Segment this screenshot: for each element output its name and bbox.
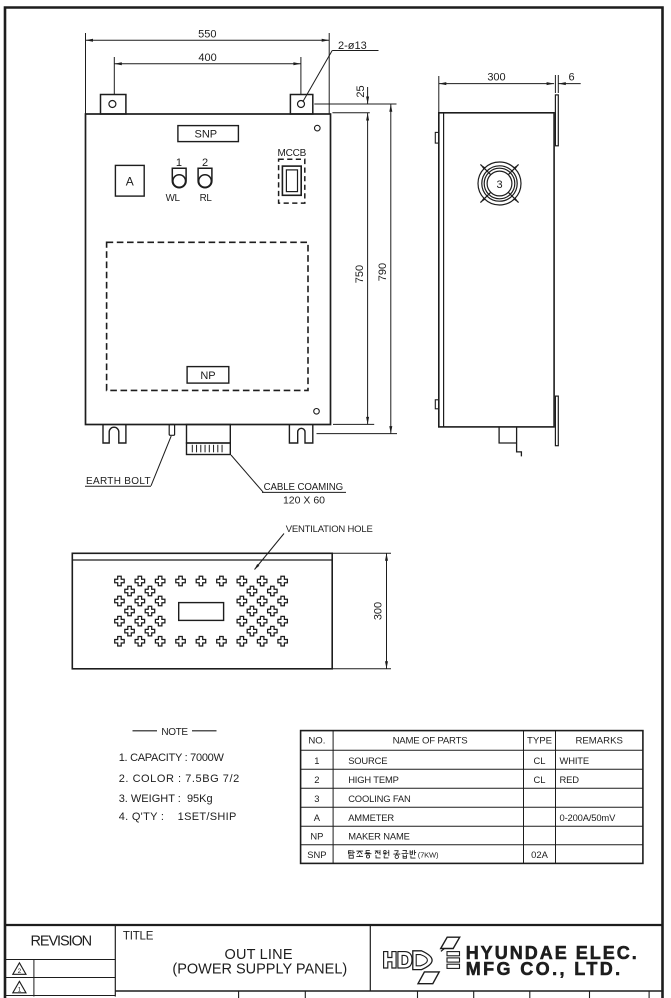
svg-text:2: 2 bbox=[314, 774, 319, 785]
svg-text:1: 1 bbox=[18, 987, 22, 994]
svg-text:AMMETER: AMMETER bbox=[348, 812, 394, 823]
svg-text:TITLE: TITLE bbox=[123, 931, 154, 943]
svg-text:SNP: SNP bbox=[194, 129, 217, 141]
svg-text:SOURCE: SOURCE bbox=[348, 755, 387, 766]
svg-text:400: 400 bbox=[198, 52, 216, 64]
svg-text:A: A bbox=[126, 175, 134, 189]
svg-text:CL: CL bbox=[534, 755, 546, 766]
svg-text:RL: RL bbox=[200, 193, 213, 204]
svg-text:NAME OF PARTS: NAME OF PARTS bbox=[393, 735, 468, 746]
svg-text:MFG CO., LTD.: MFG CO., LTD. bbox=[466, 959, 623, 979]
svg-text:2. COLOR : 7.5BG 7/2: 2. COLOR : 7.5BG 7/2 bbox=[119, 773, 240, 785]
svg-text:REMARKS: REMARKS bbox=[575, 735, 622, 746]
svg-text:EARTH BOLT: EARTH BOLT bbox=[86, 476, 151, 487]
svg-text:SNP: SNP bbox=[307, 849, 326, 860]
svg-text:TYPE: TYPE bbox=[527, 735, 552, 746]
svg-text:CL: CL bbox=[534, 774, 546, 785]
svg-text:300: 300 bbox=[487, 72, 505, 84]
svg-text:NP: NP bbox=[200, 370, 215, 382]
svg-text:NO.: NO. bbox=[308, 735, 325, 746]
svg-text:02A: 02A bbox=[531, 849, 548, 860]
svg-text:1: 1 bbox=[314, 755, 319, 766]
svg-text:RED: RED bbox=[560, 774, 580, 785]
svg-text:3: 3 bbox=[314, 793, 319, 804]
svg-text:A: A bbox=[314, 812, 321, 823]
svg-text:1: 1 bbox=[176, 157, 182, 169]
svg-text:HIGH TEMP: HIGH TEMP bbox=[348, 774, 399, 785]
svg-text:NP: NP bbox=[310, 831, 323, 842]
svg-text:MAKER NAME: MAKER NAME bbox=[348, 831, 410, 842]
svg-text:2: 2 bbox=[18, 968, 22, 975]
svg-text:0-200A/50mV: 0-200A/50mV bbox=[560, 812, 617, 823]
svg-text:750: 750 bbox=[354, 265, 366, 283]
svg-text:WL: WL bbox=[166, 193, 181, 204]
svg-text:1. CAPACITY : 7000W: 1. CAPACITY : 7000W bbox=[119, 752, 225, 764]
svg-text:WHITE: WHITE bbox=[560, 755, 589, 766]
svg-text:(7KW): (7KW) bbox=[418, 851, 439, 860]
svg-text:4. Q'TY : 1SET/SHIP: 4. Q'TY : 1SET/SHIP bbox=[119, 811, 237, 823]
svg-text:3. WEIGHT : 95Kg: 3. WEIGHT : 95Kg bbox=[119, 793, 213, 805]
svg-text:NOTE: NOTE bbox=[161, 727, 188, 738]
svg-text:CABLE COAMING: CABLE COAMING bbox=[264, 482, 343, 493]
svg-text:300: 300 bbox=[373, 602, 385, 620]
svg-text:25: 25 bbox=[355, 85, 367, 97]
svg-text:VENTILATION HOLE: VENTILATION HOLE bbox=[286, 524, 373, 535]
svg-text:120 X 60: 120 X 60 bbox=[283, 495, 325, 507]
svg-text:(POWER SUPPLY PANEL): (POWER SUPPLY PANEL) bbox=[172, 961, 347, 977]
svg-text:COOLING FAN: COOLING FAN bbox=[348, 793, 410, 804]
svg-text:2: 2 bbox=[202, 157, 208, 169]
svg-text:790: 790 bbox=[377, 263, 389, 281]
svg-text:550: 550 bbox=[198, 29, 216, 41]
svg-text:3: 3 bbox=[496, 179, 502, 191]
svg-text:REVISION: REVISION bbox=[31, 933, 92, 949]
svg-text:6: 6 bbox=[568, 72, 574, 84]
svg-text:MCCB: MCCB bbox=[277, 148, 306, 159]
